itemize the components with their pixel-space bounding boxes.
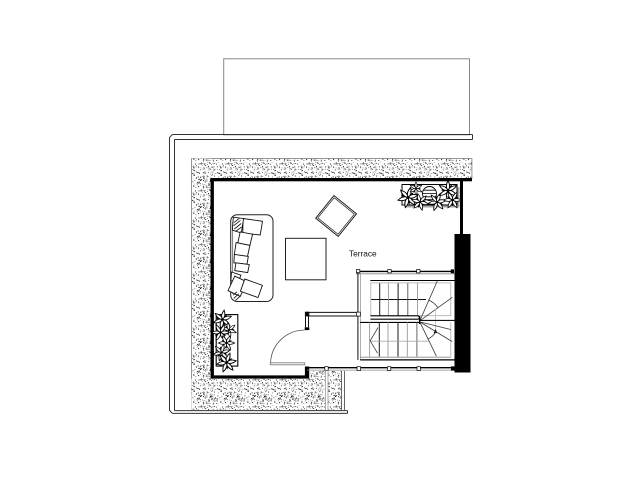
- svg-text:Terrace: Terrace: [349, 249, 377, 259]
